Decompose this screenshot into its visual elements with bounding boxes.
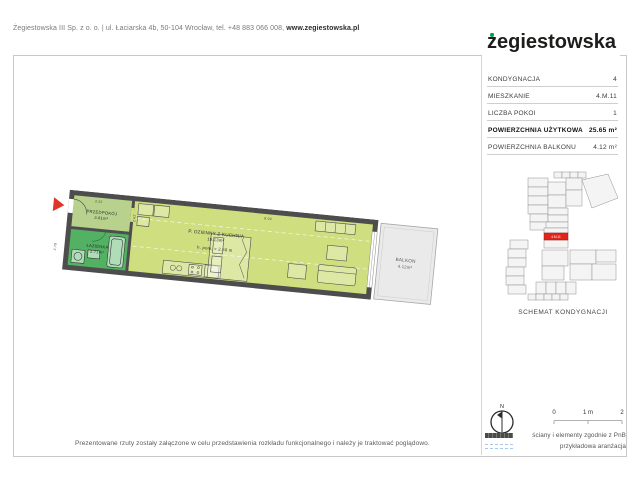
scale-mid: 1 m	[583, 410, 593, 416]
legend-row-walls: ściany i elementy zgodnie z PnB	[485, 430, 626, 441]
apartment-info-table: KONDYGNACJA 4 MIESZKANIE 4.M.11 LICZBA P…	[487, 70, 618, 155]
brand-logo: żegiestowska	[487, 31, 616, 54]
row-value: 4	[613, 76, 617, 83]
dim-vertical-left: 2.78	[53, 243, 58, 251]
frame-logo-gap	[482, 53, 620, 58]
company-address-line: Żegiestowska III Sp. z o. o. | ul. Łacia…	[13, 25, 359, 32]
dim-top-living: 8.04	[264, 216, 272, 221]
entrance-arrow-icon	[53, 197, 65, 212]
legend-label: przykładowa aranżacja	[560, 443, 626, 450]
scale-bar: 0 1 m 2	[548, 406, 628, 428]
row-value: 1	[613, 110, 617, 117]
schematic-highlight-label: 4.M.11	[551, 235, 561, 239]
dim-vertical-mid: 2.62	[132, 214, 137, 222]
table-row-mieszkanie: MIESZKANIE 4.M.11	[487, 87, 618, 104]
row-label: POWIERZCHNIA UŻYTKOWA	[488, 127, 583, 134]
scale-bar-drawing: 0 1 m 2	[548, 406, 628, 428]
table-row-powierzchnia-balkonu: POWIERZCHNIA BALKONU 4.12 m²	[487, 138, 618, 155]
scale-zero: 0	[552, 410, 556, 416]
table-row-kondygnacja: KONDYGNACJA 4	[487, 70, 618, 87]
scale-end: 2	[620, 410, 624, 416]
row-label: LICZBA POKOI	[488, 110, 536, 117]
row-value: 4.M.11	[596, 93, 617, 100]
row-value: 25.65 m²	[589, 127, 617, 134]
logo-z-letter: ż	[487, 31, 497, 54]
dashed-swatch-icon	[485, 444, 513, 449]
north-label: N	[500, 404, 504, 410]
legend-row-arrangement: przykładowa aranżacja	[485, 441, 626, 452]
schematic-caption: SCHEMAT KONDYGNACJI	[500, 309, 626, 316]
logo-rest: egiestowska	[497, 31, 616, 53]
row-label: MIESZKANIE	[488, 93, 530, 100]
legend: ściany i elementy zgodnie z PnB przykład…	[485, 430, 626, 452]
floor-schematic-drawing: 4.M.11	[498, 170, 626, 304]
company-address-text: Żegiestowska III Sp. z o. o. | ul. Łacia…	[13, 25, 286, 32]
legend-label: ściany i elementy zgodnie z PnB	[532, 432, 626, 439]
row-value: 4.12 m²	[593, 144, 617, 151]
row-label: POWIERZCHNIA BALKONU	[488, 144, 576, 151]
table-row-liczba-pokoi: LICZBA POKOI 1	[487, 104, 618, 121]
floor-schematic: 4.M.11	[498, 170, 626, 304]
row-label: KONDYGNACJA	[488, 76, 540, 83]
company-website: www.zegiestowska.pl	[286, 25, 359, 32]
disclaimer-text: Prezentowane rzuty zostały załączone w c…	[75, 440, 430, 447]
sidebar-divider	[481, 56, 482, 455]
dim-top-left: 2.61	[95, 199, 103, 204]
wall-swatch-icon	[485, 433, 513, 438]
table-row-powierzchnia-uzytkowa: POWIERZCHNIA UŻYTKOWA 25.65 m²	[487, 121, 618, 138]
